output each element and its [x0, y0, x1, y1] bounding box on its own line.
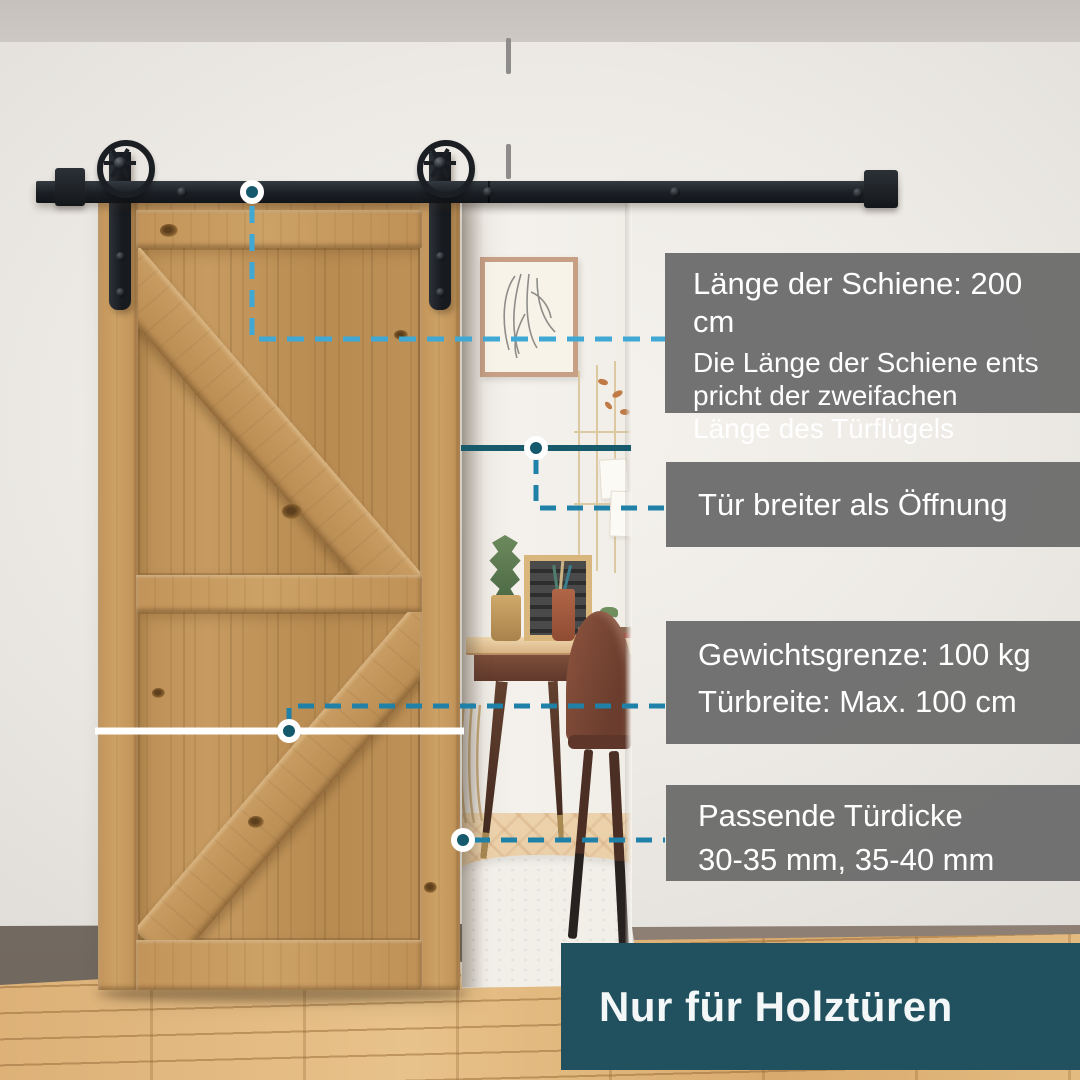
callout-rail-length-line2: pricht der zweifachen — [693, 379, 1070, 412]
callout-thickness: Passende Türdicke 30-35 mm, 35-40 mm — [666, 785, 1080, 881]
connector-rail-length — [252, 206, 665, 339]
callout-rail-length-line3: Länge des Türflügels — [693, 412, 1070, 445]
product-infographic: Länge der Schiene: 200 cm Die Länge der … — [0, 0, 1080, 1080]
info-banner: Nur für Holztüren — [561, 943, 1080, 1070]
info-banner-label: Nur für Holztüren — [599, 983, 953, 1031]
callout-thickness-line2: 30-35 mm, 35-40 mm — [698, 838, 1070, 882]
connector-weight — [289, 706, 665, 724]
callout-rail-length-line1: Die Länge der Schiene ents — [693, 346, 1070, 379]
marker-dot-door-width — [280, 722, 298, 740]
callout-door-wider-title: Tür breiter als Öffnung — [698, 486, 1008, 524]
marker-dot-thickness — [454, 831, 472, 849]
connector-door-wider — [536, 458, 665, 508]
callout-rail-length: Länge der Schiene: 200 cm Die Länge der … — [665, 253, 1080, 413]
marker-dot-rail — [243, 183, 261, 201]
callout-weight: Gewichtsgrenze: 100 kg Türbreite: Max. 1… — [666, 621, 1080, 744]
callout-weight-line2: Türbreite: Max. 100 cm — [698, 678, 1070, 725]
callout-thickness-line1: Passende Türdicke — [698, 794, 1070, 838]
callout-weight-line1: Gewichtsgrenze: 100 kg — [698, 631, 1070, 678]
marker-dot-opening — [527, 439, 545, 457]
callout-rail-length-title: Länge der Schiene: 200 cm — [693, 265, 1070, 341]
callout-door-wider: Tür breiter als Öffnung — [666, 462, 1080, 547]
